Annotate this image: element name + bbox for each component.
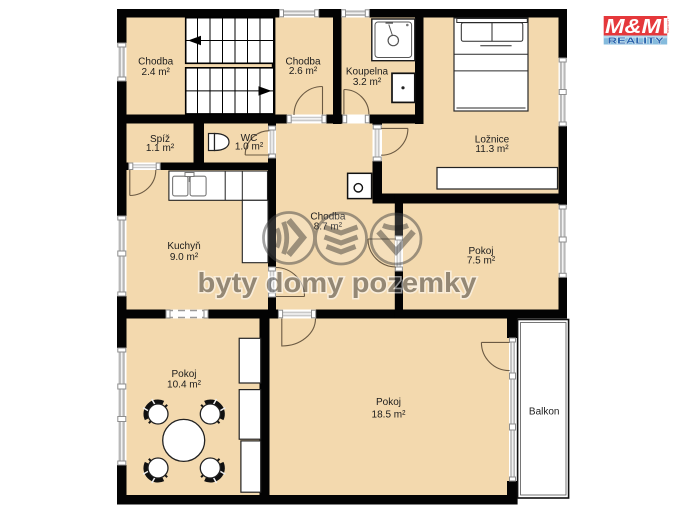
svg-text:Pokoj18.5 m²: Pokoj18.5 m²	[372, 397, 407, 421]
svg-text:Ložnice11.3 m²: Ložnice11.3 m²	[475, 134, 510, 155]
svg-text:REALITY: REALITY	[608, 35, 665, 45]
svg-text:Chodba2.6 m²: Chodba2.6 m²	[285, 56, 320, 77]
svg-text:Pokoj7.5 m²: Pokoj7.5 m²	[467, 246, 496, 267]
svg-text:Balkon: Balkon	[529, 407, 560, 418]
svg-text:HOLDING: HOLDING	[666, 20, 670, 34]
svg-text:Pokoj10.4 m²: Pokoj10.4 m²	[167, 369, 202, 391]
svg-text:byty domy pozemky: byty domy pozemky	[198, 267, 477, 298]
svg-text:Kuchyň9.0 m²: Kuchyň9.0 m²	[167, 241, 200, 263]
svg-text:Chodba2.4 m²: Chodba2.4 m²	[138, 57, 173, 78]
